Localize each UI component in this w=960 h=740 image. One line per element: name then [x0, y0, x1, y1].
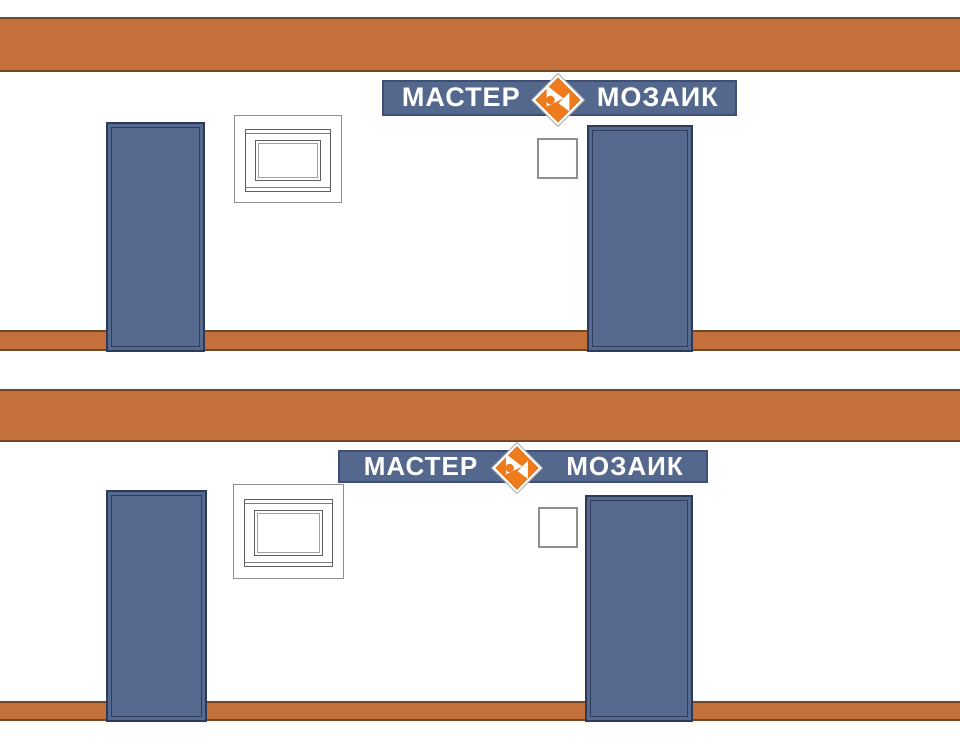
small-square: [538, 507, 578, 548]
logo-diamond-icon: [531, 73, 585, 127]
door-panel: [590, 500, 688, 717]
door-right: [587, 125, 693, 352]
window: [233, 484, 344, 579]
door-panel: [592, 130, 688, 347]
sign-board: МАСТЕР МОЗАИК: [338, 450, 708, 483]
facade-top-band: [0, 17, 960, 72]
window-glass: [255, 140, 322, 181]
facade-top-band: [0, 389, 960, 442]
sign-text-master: МАСТЕР: [394, 84, 529, 113]
window-glass: [254, 510, 323, 556]
sign-text-mozaik: МОЗАИК: [591, 84, 726, 113]
door-panel: [111, 127, 200, 347]
logo-diamond-icon: [491, 442, 543, 494]
door-left: [106, 490, 207, 722]
door-right: [585, 495, 693, 722]
window: [234, 115, 342, 203]
window-frame: [244, 499, 333, 567]
facade-mockup: МАСТЕР МОЗАИК: [0, 0, 960, 740]
door-panel: [111, 495, 202, 717]
sign-text-mozaik: МОЗАИК: [554, 453, 696, 481]
sign-board: МАСТЕР МОЗАИК: [382, 80, 737, 116]
sign-text-master: МАСТЕР: [350, 453, 492, 481]
small-square: [537, 138, 578, 179]
door-left: [106, 122, 205, 352]
window-frame: [245, 129, 332, 192]
